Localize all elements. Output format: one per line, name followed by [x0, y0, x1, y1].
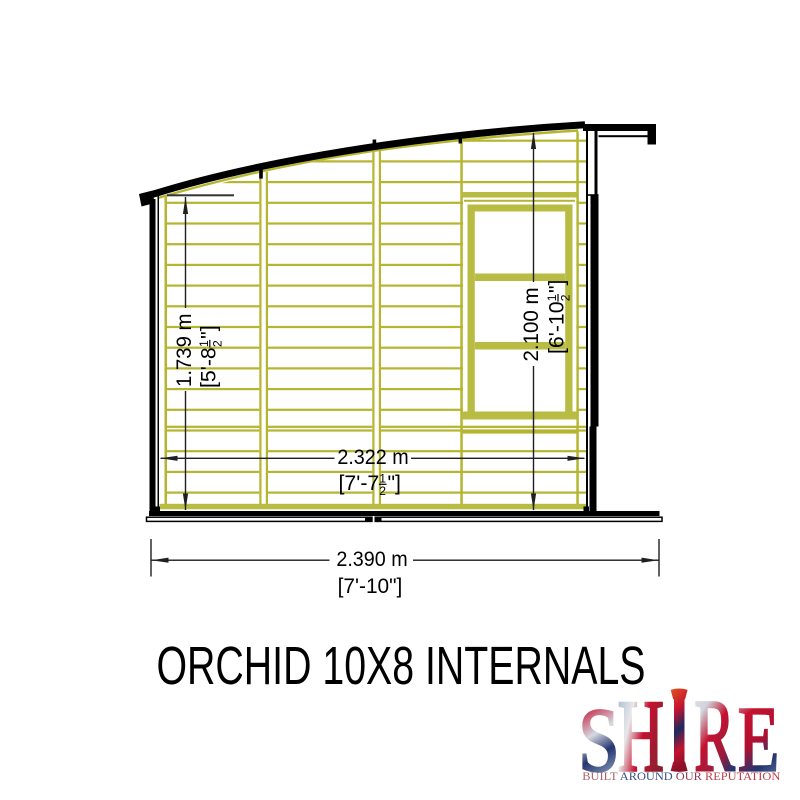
- svg-text:2: 2: [211, 340, 225, 347]
- svg-text:[6'-10: [6'-10: [545, 301, 569, 354]
- svg-text:ORCHID 10X8 INTERNALS: ORCHID 10X8 INTERNALS: [157, 637, 646, 696]
- svg-text:[7'-10"]: [7'-10"]: [338, 574, 403, 598]
- svg-text:"]: "]: [545, 280, 569, 293]
- svg-text:[5'-8: [5'-8: [197, 347, 221, 388]
- svg-text:"]: "]: [388, 471, 401, 495]
- svg-text:2.390 m: 2.390 m: [336, 547, 407, 571]
- svg-text:1.739 m: 1.739 m: [172, 314, 196, 388]
- svg-text:2.322 m: 2.322 m: [337, 445, 408, 469]
- svg-text:2: 2: [379, 484, 386, 498]
- svg-text:1: 1: [197, 340, 211, 347]
- svg-text:[7'-7: [7'-7: [339, 471, 380, 495]
- svg-text:2: 2: [559, 294, 573, 301]
- svg-text:1: 1: [545, 294, 559, 301]
- svg-text:"]: "]: [197, 325, 221, 338]
- svg-text:BUILT AROUND OUR REPUTATION: BUILT AROUND OUR REPUTATION: [582, 769, 780, 783]
- svg-text:2.100 m: 2.100 m: [519, 288, 543, 362]
